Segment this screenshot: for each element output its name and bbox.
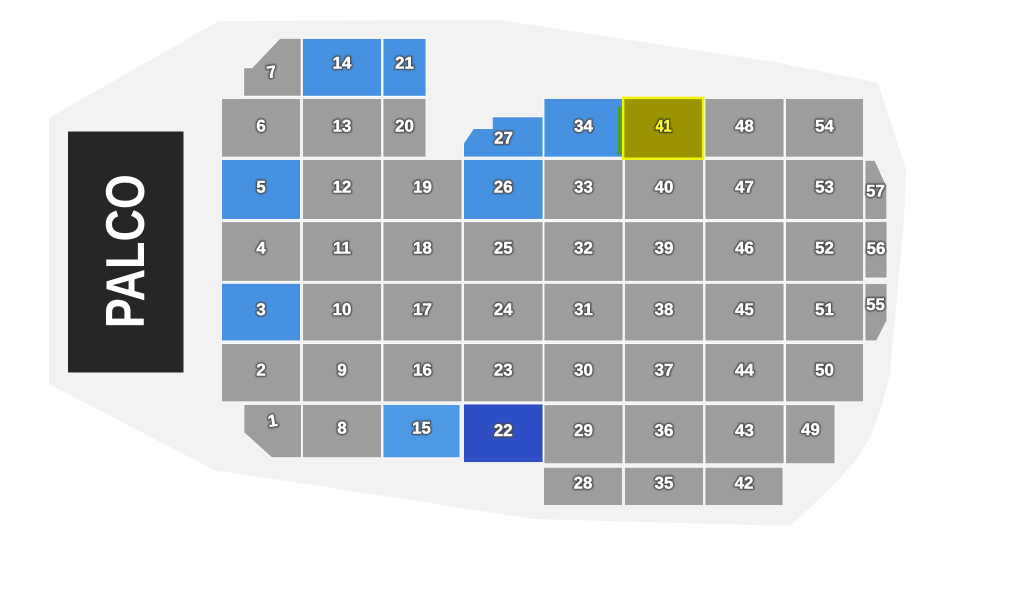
svg-text:37: 37 (655, 361, 674, 380)
svg-text:40: 40 (655, 178, 674, 197)
svg-text:20: 20 (395, 116, 414, 135)
svg-text:53: 53 (815, 178, 834, 197)
svg-text:54: 54 (815, 116, 834, 135)
svg-text:33: 33 (574, 178, 593, 197)
svg-text:19: 19 (413, 178, 432, 197)
svg-text:10: 10 (333, 300, 352, 319)
svg-text:16: 16 (413, 361, 432, 380)
svg-text:28: 28 (574, 474, 593, 493)
svg-text:41: 41 (656, 117, 672, 136)
svg-text:5: 5 (256, 178, 265, 197)
svg-text:22: 22 (494, 421, 513, 440)
svg-text:11: 11 (333, 238, 351, 257)
svg-text:48: 48 (735, 116, 754, 135)
svg-text:25: 25 (494, 238, 513, 257)
svg-text:24: 24 (494, 300, 513, 319)
svg-text:13: 13 (333, 116, 352, 135)
svg-text:38: 38 (655, 300, 674, 319)
svg-text:34: 34 (574, 116, 593, 135)
svg-text:29: 29 (574, 421, 593, 440)
svg-text:43: 43 (735, 421, 754, 440)
svg-text:15: 15 (412, 418, 431, 437)
svg-text:39: 39 (655, 238, 674, 257)
svg-text:49: 49 (801, 420, 820, 439)
svg-text:55: 55 (866, 295, 885, 314)
svg-text:52: 52 (815, 238, 834, 257)
svg-text:6: 6 (256, 116, 265, 135)
svg-text:4: 4 (256, 238, 266, 257)
svg-text:8: 8 (337, 418, 346, 437)
svg-text:9: 9 (337, 361, 346, 380)
svg-text:3: 3 (256, 300, 265, 319)
svg-text:45: 45 (735, 300, 754, 319)
svg-text:51: 51 (815, 300, 834, 319)
svg-text:36: 36 (655, 421, 674, 440)
svg-text:46: 46 (735, 238, 754, 257)
svg-text:27: 27 (494, 128, 513, 147)
svg-text:44: 44 (735, 361, 754, 380)
svg-text:17: 17 (413, 300, 432, 319)
svg-text:14: 14 (333, 54, 352, 73)
svg-text:18: 18 (413, 238, 432, 257)
svg-text:57: 57 (866, 181, 885, 200)
svg-text:23: 23 (494, 361, 513, 380)
svg-text:56: 56 (867, 239, 886, 258)
svg-text:2: 2 (256, 361, 265, 380)
svg-text:35: 35 (655, 474, 674, 493)
svg-text:32: 32 (574, 238, 593, 257)
svg-text:47: 47 (735, 178, 754, 197)
svg-text:21: 21 (395, 54, 414, 73)
svg-text:26: 26 (494, 178, 513, 197)
svg-text:PALCO: PALCO (95, 174, 156, 328)
svg-text:30: 30 (574, 361, 593, 380)
svg-text:50: 50 (815, 361, 834, 380)
svg-text:12: 12 (333, 178, 352, 197)
svg-text:31: 31 (574, 300, 593, 319)
svg-text:42: 42 (735, 474, 754, 493)
